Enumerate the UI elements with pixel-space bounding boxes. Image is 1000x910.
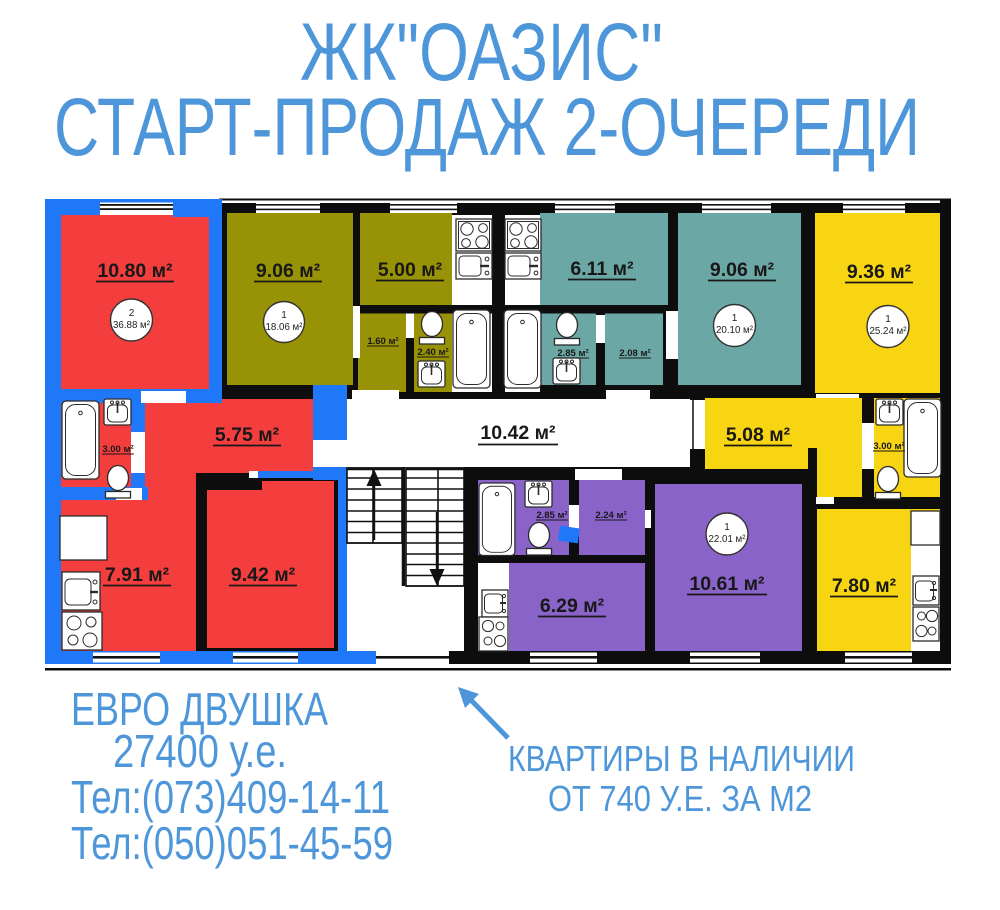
svg-text:3.00 м²: 3.00 м² (102, 444, 133, 455)
svg-text:9.36 м²: 9.36 м² (847, 261, 912, 283)
svg-text:5.00 м²: 5.00 м² (378, 259, 443, 281)
svg-text:9.06 м²: 9.06 м² (710, 259, 775, 281)
svg-text:1: 1 (281, 310, 287, 321)
svg-text:КВАРТИРЫ В НАЛИЧИИ: КВАРТИРЫ В НАЛИЧИИ (508, 738, 855, 779)
svg-text:20.10 м²: 20.10 м² (716, 325, 754, 336)
svg-text:2.85 м²: 2.85 м² (557, 348, 588, 359)
svg-text:7.80 м²: 7.80 м² (832, 575, 897, 597)
svg-text:7.91 м²: 7.91 м² (105, 564, 170, 586)
svg-text:2.85 м²: 2.85 м² (536, 510, 567, 521)
svg-text:9.42 м²: 9.42 м² (231, 564, 296, 586)
svg-text:9.06 м²: 9.06 м² (256, 260, 321, 282)
svg-text:6.29 м²: 6.29 м² (540, 595, 605, 617)
svg-text:2.08 м²: 2.08 м² (619, 348, 650, 359)
svg-text:25.24 м²: 25.24 м² (870, 326, 908, 337)
svg-text:5.75 м²: 5.75 м² (215, 424, 280, 446)
svg-text:5.08 м²: 5.08 м² (726, 424, 791, 446)
svg-text:2.24 м²: 2.24 м² (595, 510, 626, 521)
svg-text:1: 1 (885, 314, 891, 325)
svg-text:27400 у.е.: 27400 у.е. (113, 725, 287, 777)
svg-text:СТАРТ-ПРОДАЖ 2-ОЧЕРЕДИ: СТАРТ-ПРОДАЖ 2-ОЧЕРЕДИ (54, 82, 920, 173)
svg-text:18.06 м²: 18.06 м² (266, 322, 304, 333)
svg-text:2: 2 (129, 308, 135, 319)
svg-text:36.88 м²: 36.88 м² (113, 320, 151, 331)
svg-text:Тел:(073)409-14-11: Тел:(073)409-14-11 (71, 771, 390, 823)
svg-text:22.01 м²: 22.01 м² (709, 534, 747, 545)
svg-text:3.00 м²: 3.00 м² (873, 441, 904, 452)
svg-text:10.42 м²: 10.42 м² (480, 422, 556, 444)
svg-text:1: 1 (724, 522, 730, 533)
svg-text:10.61 м²: 10.61 м² (689, 573, 765, 595)
svg-text:1.60 м²: 1.60 м² (367, 336, 398, 347)
svg-text:10.80 м²: 10.80 м² (97, 260, 173, 282)
svg-text:1: 1 (732, 313, 738, 324)
svg-text:Тел:(050)051-45-59: Тел:(050)051-45-59 (71, 817, 393, 869)
svg-text:2.40 м²: 2.40 м² (417, 347, 448, 358)
svg-text:6.11 м²: 6.11 м² (570, 258, 634, 280)
svg-text:ОТ 740 У.Е. ЗА М2: ОТ 740 У.Е. ЗА М2 (548, 778, 812, 819)
